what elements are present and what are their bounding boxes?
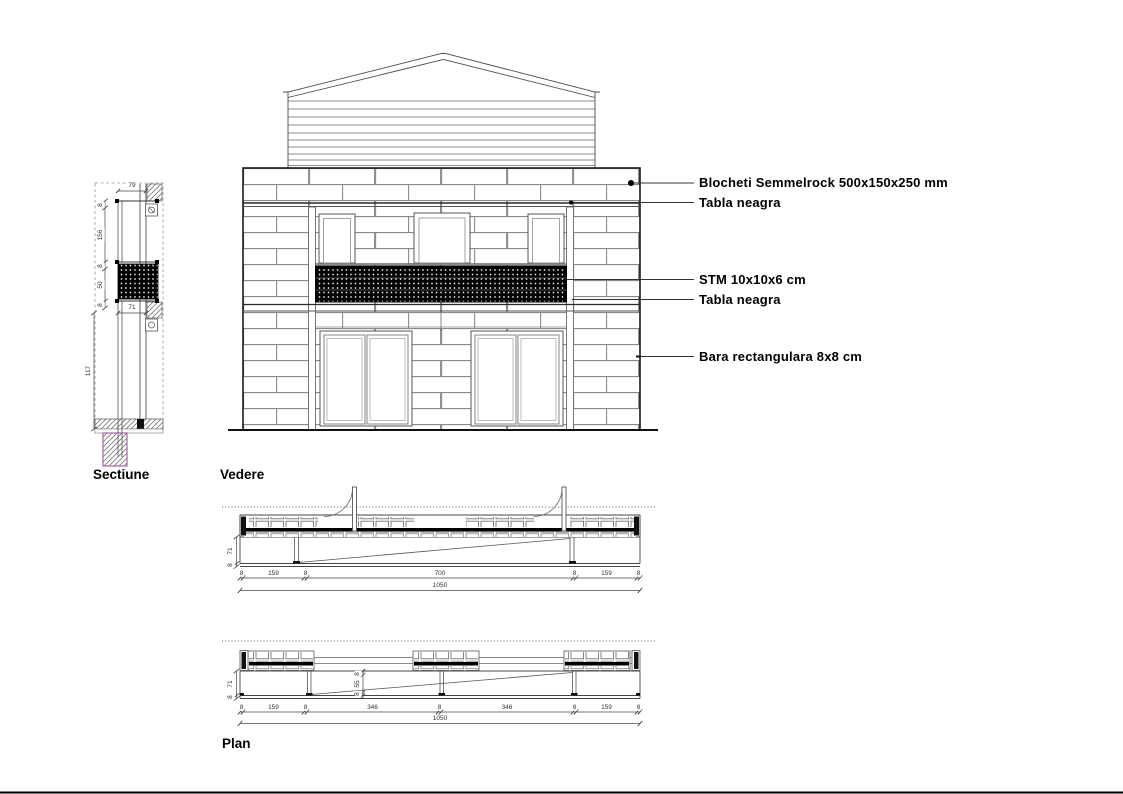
foundation-block xyxy=(103,433,127,466)
section-dim: 8 xyxy=(98,263,105,269)
section-dim: 8 xyxy=(98,202,105,208)
plan-top-dim: 8 xyxy=(636,570,642,577)
annotation-blocheti: Blocheti Semmelrock 500x150x250 mm xyxy=(699,175,948,191)
drawing-title-sectiune: Sectiune xyxy=(93,467,149,482)
plan-bottom-dim-mid: 8 xyxy=(355,691,362,697)
section-dim: 156 xyxy=(98,229,105,242)
plan-top-dim: 159 xyxy=(267,570,280,577)
masonry-groups xyxy=(248,651,630,671)
plan-bottom-dim-side: 71 xyxy=(228,679,235,688)
section-dim-total-height: 117 xyxy=(86,365,93,377)
plan-bottom-dim: 159 xyxy=(267,704,280,711)
section-mesh xyxy=(118,264,158,299)
plan-bottom-dim: 159 xyxy=(600,704,613,711)
roof xyxy=(283,54,600,169)
plan-top-dim-total: 1050 xyxy=(432,583,448,590)
section-dim: 50 xyxy=(98,280,105,289)
plan-bottom-dim-side-base: 8 xyxy=(228,694,235,700)
annotation-bara: Bara rectangulara 8x8 cm xyxy=(699,349,862,365)
plan-bottom-dim-total: 1050 xyxy=(432,716,448,723)
plan-bottom-dim-mid: 55 xyxy=(355,679,362,688)
plan-top-drawing xyxy=(222,487,656,593)
plan-bottom-dim: 8 xyxy=(636,704,642,711)
plan-top-dim-side: 71 xyxy=(228,546,235,555)
section-dim: 8 xyxy=(98,302,105,308)
stm-mesh-band xyxy=(316,266,567,302)
plan-top-dim-side-base: 8 xyxy=(228,562,235,568)
section-dim-top-width: 79 xyxy=(127,183,136,190)
drawing-canvas xyxy=(0,0,1123,794)
drawing-title-vedere: Vedere xyxy=(220,467,264,482)
section-drawing xyxy=(91,183,163,466)
annotation-stm: STM 10x10x6 cm xyxy=(699,272,806,288)
plan-bottom-dim: 346 xyxy=(366,704,379,711)
plan-top-dim: 8 xyxy=(572,570,578,577)
plan-bottom-dim: 8 xyxy=(303,704,309,711)
annotation-tabla-neagra-2: Tabla neagra xyxy=(699,292,781,308)
plan-bottom-dim: 8 xyxy=(437,704,443,711)
plan-top-dim: 700 xyxy=(434,570,447,577)
plan-bottom-dim: 346 xyxy=(501,704,514,711)
plan-bottom-dim: 8 xyxy=(572,704,578,711)
annotation-tabla-neagra-1: Tabla neagra xyxy=(699,195,781,211)
leader-dot xyxy=(628,180,634,186)
blueprint-page: Sectiune Vedere Plan Blocheti Semmelrock… xyxy=(0,0,1123,794)
drawing-title-plan: Plan xyxy=(222,736,251,751)
plan-bottom-dim-mid: 8 xyxy=(355,671,362,677)
plan-top-dim: 8 xyxy=(303,570,309,577)
plan-top-dim: 8 xyxy=(239,570,245,577)
leader-dot xyxy=(569,201,573,205)
plan-top-dim: 159 xyxy=(600,570,613,577)
plan-bottom-drawing xyxy=(222,641,656,726)
section-dim-inner-width: 71 xyxy=(127,305,136,312)
plan-bottom-dim: 8 xyxy=(239,704,245,711)
elevation-drawing xyxy=(228,54,658,431)
